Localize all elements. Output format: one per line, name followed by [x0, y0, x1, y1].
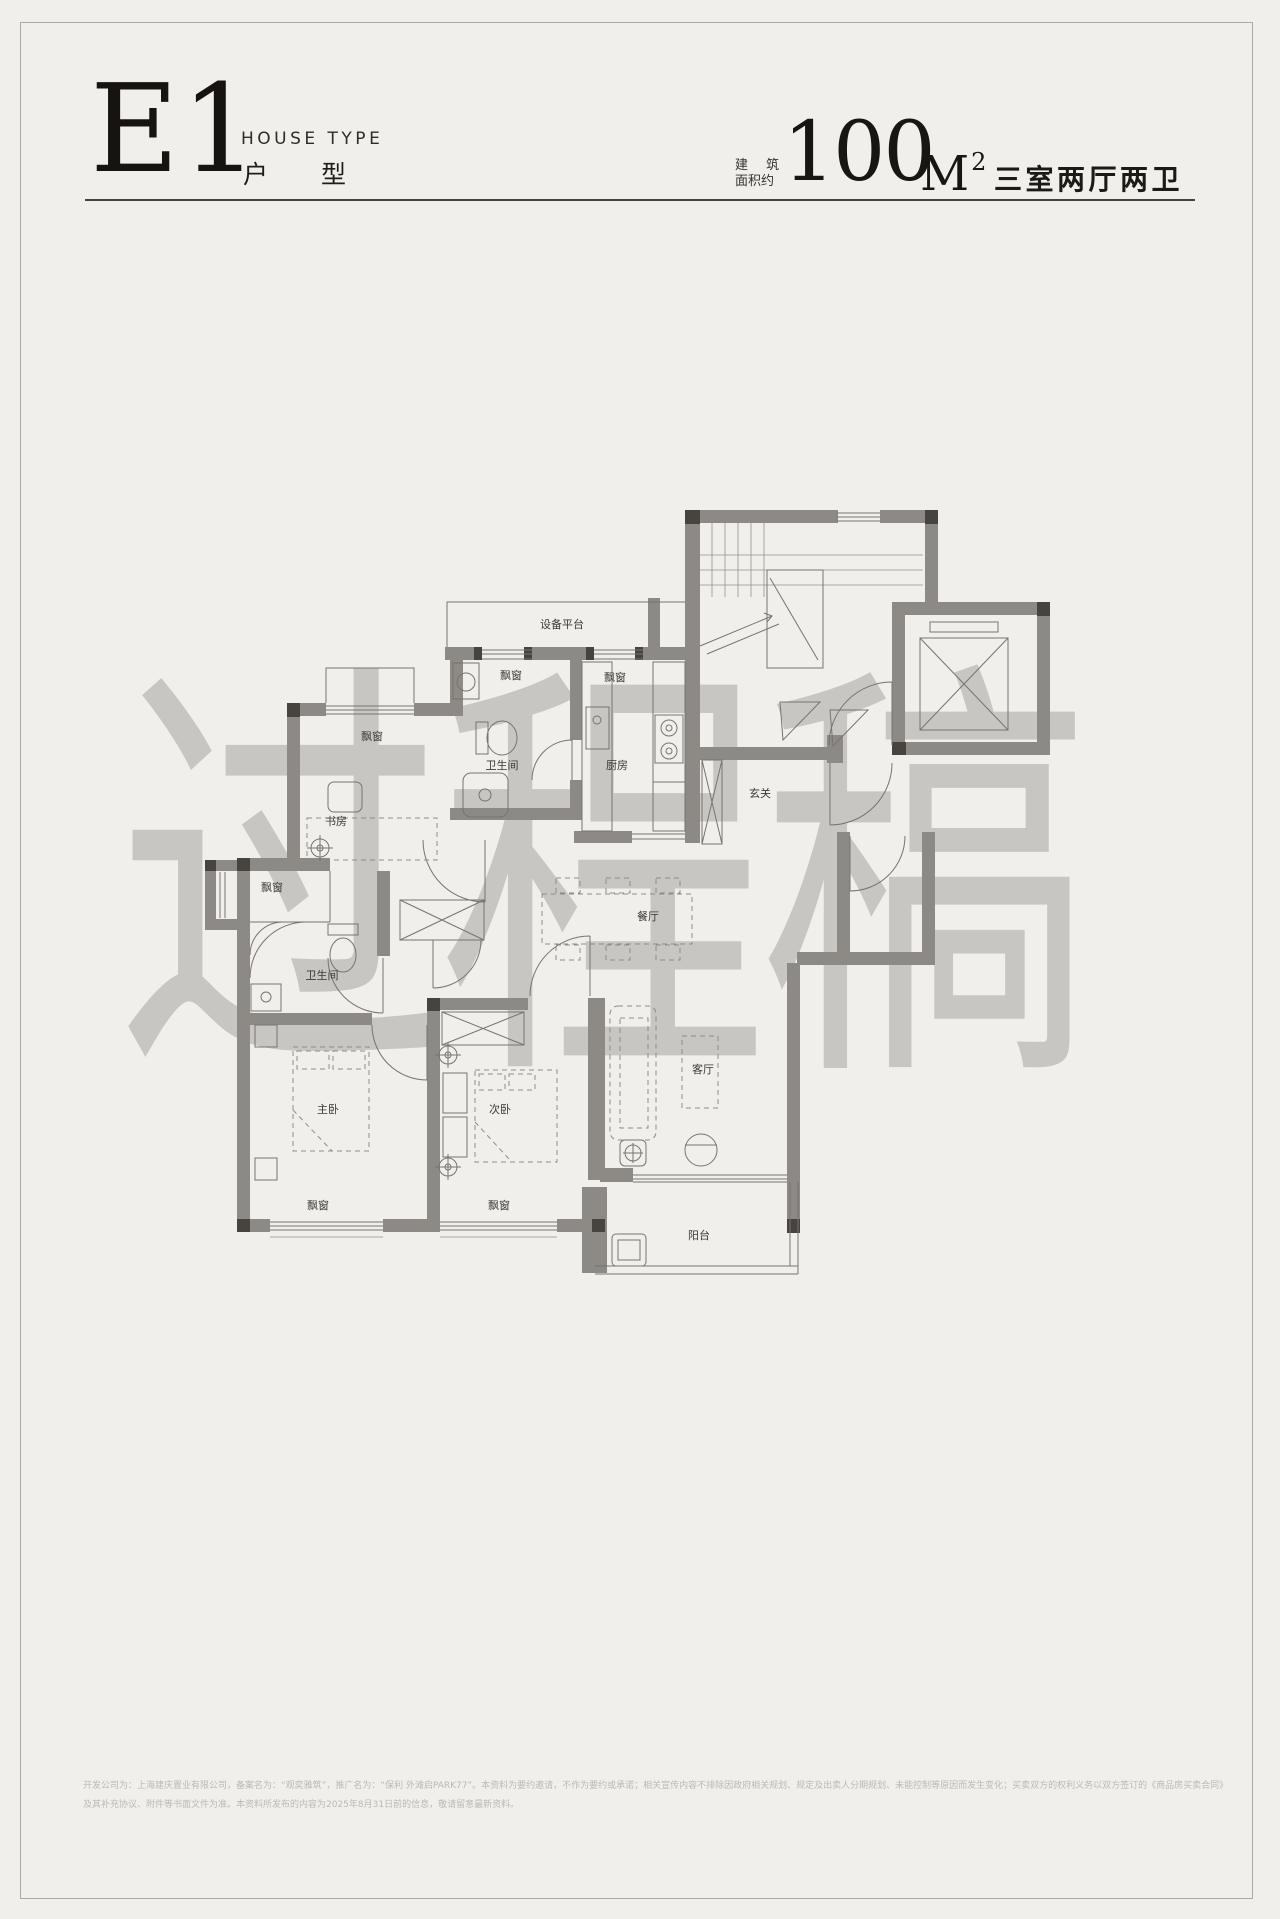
platform-and-bay-outlines — [250, 602, 798, 1274]
room-label-foyer: 玄关 — [749, 786, 771, 800]
disclaimer-line-1: 开发公司为：上海建庆置业有限公司，备案名为：“观奕雅筑”，推广名为：“保利 外滩… — [83, 1777, 1203, 1796]
room-label-dining: 餐厅 — [637, 909, 659, 923]
floor-plan: 设备平台 飘窗 飘窗 飘窗 飘窗 飘窗 飘窗 卫生间 卫生间 厨房 玄关 书房 … — [180, 410, 1060, 1290]
room-label-bay-window: 飘窗 — [307, 1198, 329, 1212]
room-label-bathroom-upper: 卫生间 — [486, 758, 519, 772]
doors — [328, 682, 905, 1080]
stairs — [700, 523, 923, 746]
house-type-label-en: HOUSE TYPE — [241, 129, 383, 149]
room-label-bay-window: 飘窗 — [500, 668, 522, 682]
room-label-living-room: 客厅 — [692, 1062, 714, 1076]
house-type-label-cn: 户 型 — [243, 155, 346, 191]
header-divider — [85, 199, 1195, 201]
area-prefix: 建 筑 面积约 — [735, 158, 779, 190]
area-value: 100 — [783, 112, 934, 194]
room-label-bay-window: 飘窗 — [361, 729, 383, 743]
elevator-icon — [920, 622, 1008, 730]
room-label-equipment-platform: 设备平台 — [540, 617, 584, 631]
room-label-bay-window: 飘窗 — [604, 670, 626, 684]
room-label-balcony: 阳台 — [688, 1228, 710, 1242]
house-type-code: E1 — [90, 68, 261, 190]
disclaimer: 开发公司为：上海建庆置业有限公司，备案名为：“观奕雅筑”，推广名为：“保利 外滩… — [83, 1777, 1203, 1815]
room-label-bathroom-lower: 卫生间 — [306, 968, 339, 982]
room-label-master-bedroom: 主卧 — [317, 1103, 339, 1116]
kitchen-fixtures — [582, 662, 685, 831]
house-type-char-1: 户 — [243, 155, 268, 191]
area-prefix-line2: 面积约 — [735, 174, 779, 190]
room-label-second-bedroom: 次卧 — [489, 1102, 511, 1116]
area-prefix-char-2: 筑 — [766, 158, 779, 174]
house-type-char-2: 型 — [321, 155, 346, 191]
room-label-bay-window: 飘窗 — [488, 1198, 510, 1212]
room-label-study: 书房 — [325, 815, 347, 828]
disclaimer-line-2: 及其补充协议、附件等书面文件为准。本资料所发布的内容为2025年8月31日前的信… — [83, 1796, 1203, 1815]
room-label-bay-window: 飘窗 — [261, 880, 283, 894]
area-prefix-char-1: 建 — [735, 158, 748, 174]
area-unit: M2 — [920, 150, 984, 198]
room-count-summary: 三室两厅两卫 — [994, 158, 1183, 198]
floor-plan-sheet: E1 HOUSE TYPE 户 型 建 筑 面积约 100 M2 三室两厅两卫 … — [0, 0, 1280, 1919]
room-label-kitchen: 厨房 — [606, 759, 628, 772]
area-unit-superscript: 2 — [971, 148, 986, 176]
